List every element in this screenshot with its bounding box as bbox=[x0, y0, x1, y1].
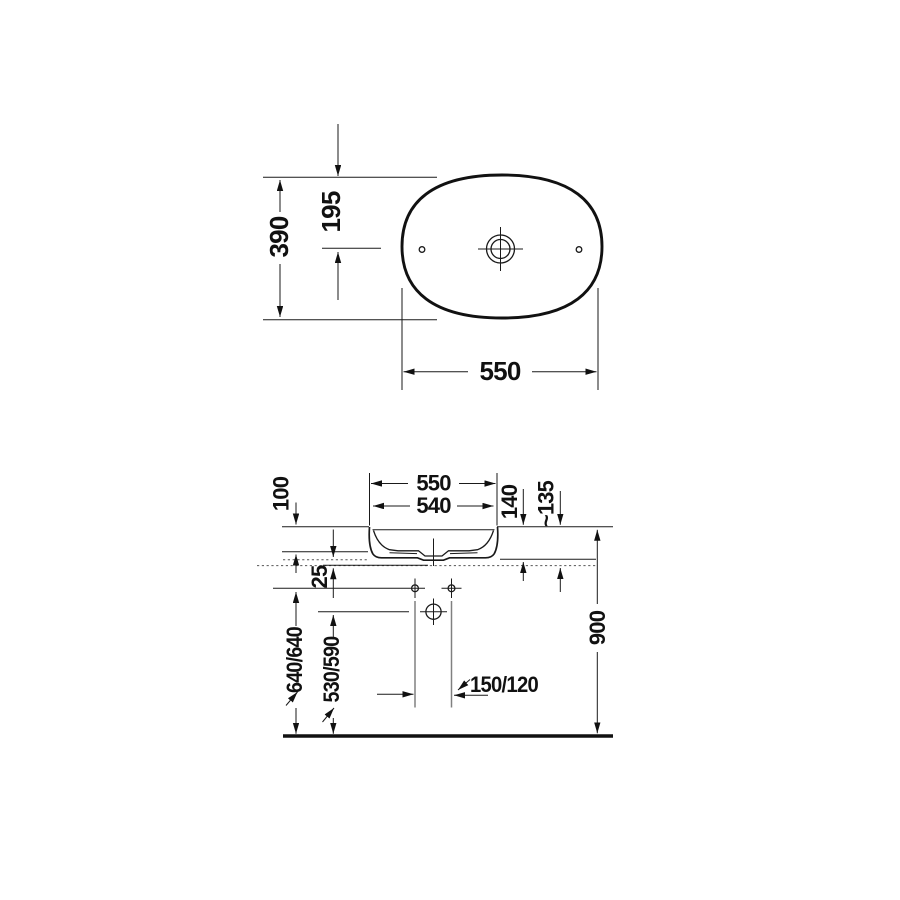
dim-label-drain-offset: 150/120 bbox=[470, 672, 539, 697]
dim-label-depth: 390 bbox=[264, 216, 294, 257]
dim-label-rim-floor-height: 900 bbox=[585, 610, 610, 645]
basin-outline bbox=[402, 175, 602, 318]
dim-label-basin-height-alt: ~135 bbox=[534, 480, 559, 527]
overflow-hole-left bbox=[419, 247, 425, 253]
overflow-hole-right bbox=[576, 247, 582, 253]
drawing-svg: 195 390 550 550 540 bbox=[0, 0, 900, 900]
dim-label-counter-offset: 25 bbox=[307, 565, 332, 588]
dim-530-slant-arrow bbox=[323, 708, 335, 722]
dim-label-outer-width: 550 bbox=[416, 471, 451, 496]
dim-label-inner-width: 540 bbox=[416, 493, 451, 518]
dim-label-width: 550 bbox=[480, 356, 521, 386]
technical-drawing-canvas: 195 390 550 550 540 bbox=[0, 0, 900, 900]
dim-label-drain-floor-height: 530/590 bbox=[319, 636, 344, 702]
dim-640-slant-arrow bbox=[286, 692, 298, 706]
dim-label-holes-floor-height: 640/640 bbox=[282, 627, 307, 693]
dim-150-leader-arrow bbox=[458, 680, 470, 691]
dim-label-basin-height: 140 bbox=[497, 484, 522, 519]
elevation-view: 550 540 100 140 ~135 25 bbox=[257, 471, 613, 737]
top-view: 195 390 550 bbox=[263, 124, 602, 390]
dim-label-rim-above-counter: 100 bbox=[269, 476, 294, 511]
dim-label-center-offset: 195 bbox=[316, 191, 346, 232]
